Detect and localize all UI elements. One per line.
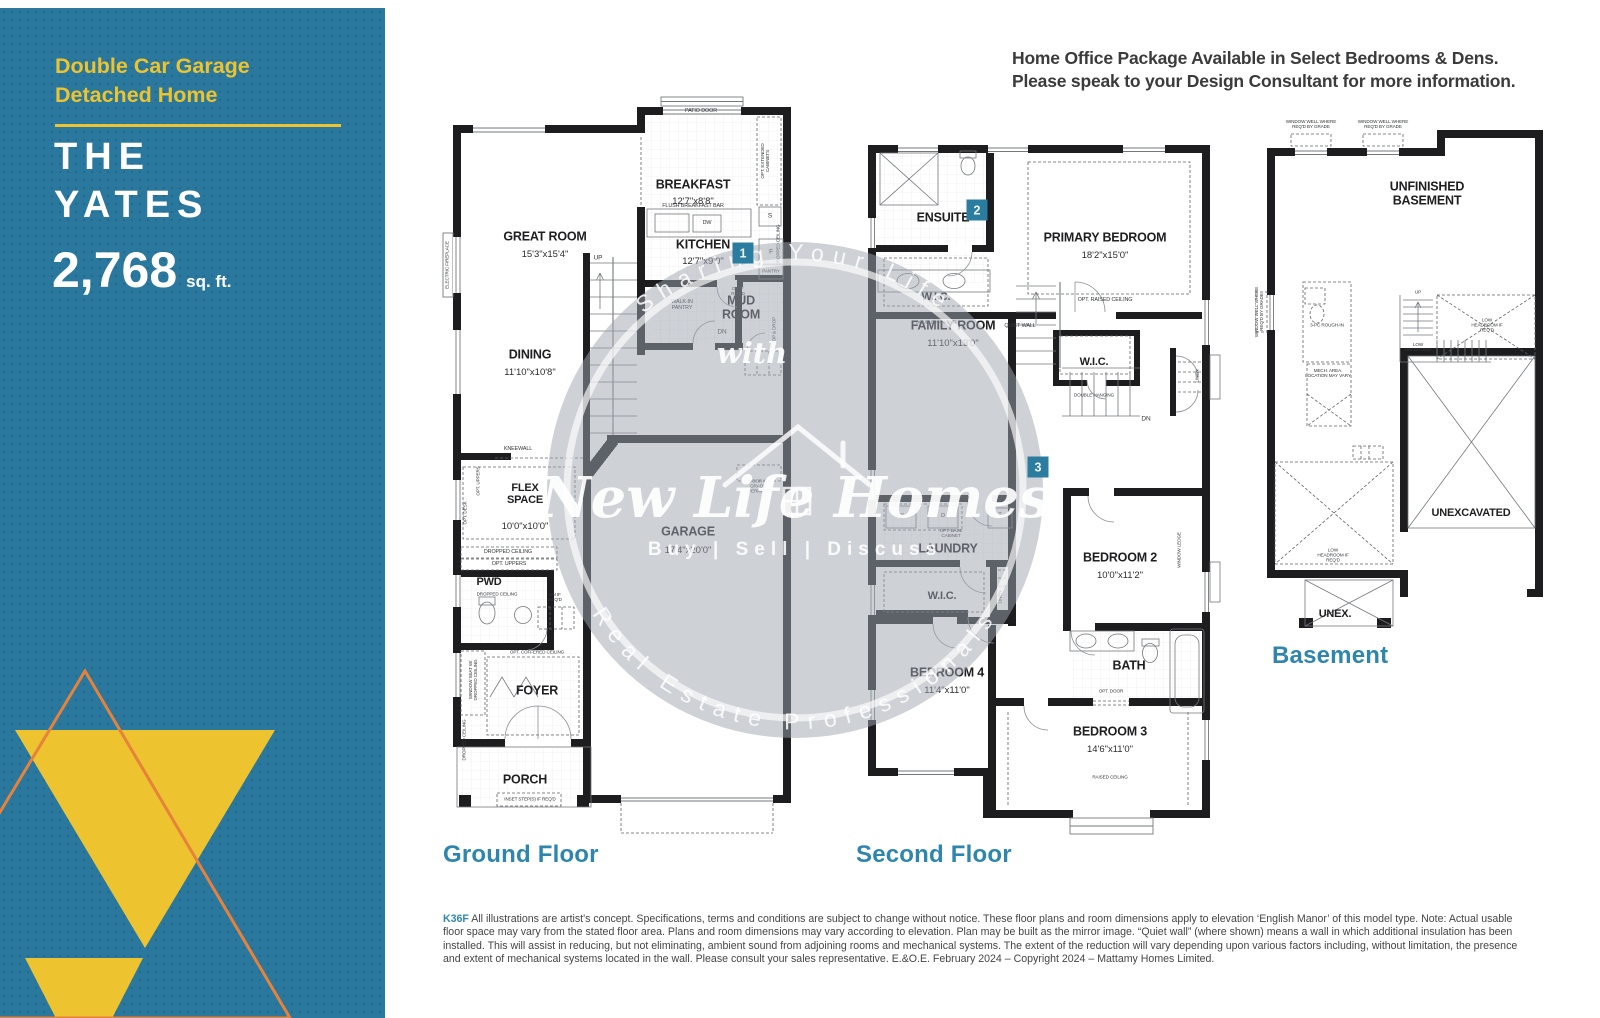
note-up: UP	[594, 254, 603, 261]
room-label-bedroom-3: BEDROOM 3	[1073, 725, 1147, 739]
note-opt-door: OPT. DOOR	[1099, 690, 1123, 695]
note-opt-extended-cabinets: OPT. EXTENDED CABINETS	[761, 136, 771, 186]
model-name-line2: YATES	[54, 184, 209, 227]
room-label-laundry: LAUNDRY	[918, 542, 977, 556]
note-dn: DN	[1141, 415, 1150, 422]
room-label-wic-3: W.I.C.	[928, 591, 957, 603]
model-name-line1: THE	[54, 136, 151, 179]
room-dims-great-room: 15'3"x15'4"	[522, 250, 569, 260]
sqft-value: 2,768	[52, 242, 177, 298]
room-dims-dining: 11'10"x10'8"	[504, 368, 555, 378]
note-opt-desk: OPT. DESK	[464, 501, 469, 524]
note-window-well-1: WINDOW WELL WHERE REQ'D BY GRADE	[1283, 120, 1339, 130]
room-label-primary-bedroom: PRIMARY BEDROOM	[1044, 231, 1167, 245]
note-linen-1: LINEN	[1196, 369, 1201, 382]
room-label-ensuite: ENSUITE	[917, 211, 970, 225]
note-electric-fireplace: ELECTRIC FIREPLACE	[446, 241, 451, 289]
room-label-flex-space: FLEX SPACE	[494, 483, 556, 507]
note-window-well-2: WINDOW WELL WHERE REQ'D BY GRADE	[1355, 120, 1411, 130]
home-type: Double Car Garage Detached Home	[55, 52, 250, 110]
disclaimer: K36F All illustrations are artist's conc…	[443, 913, 1523, 967]
note-opt-coffered-ceiling: OPT. COFFERED CEILING	[510, 651, 564, 656]
note-dropped-ceiling-foyer: DROPPED CEILING	[463, 720, 468, 761]
home-office-note-line2: Please speak to your Design Consultant f…	[1012, 70, 1515, 93]
note-fridge: F	[769, 248, 773, 255]
room-label-kitchen: KITCHEN	[676, 238, 730, 252]
note-opt-uppers: OPT. UPPERS	[943, 497, 972, 502]
plan-badge-3: 3	[1028, 457, 1049, 478]
note-low-headroom-if-reqd-2: LOW HEADROOM IF REQ'D	[1315, 549, 1351, 564]
note-sink: S	[768, 212, 772, 219]
ground-floor-drawing	[435, 95, 800, 840]
room-label-unexcavated: UNEXCAVATED	[1431, 508, 1510, 520]
note-linen-2: LINEN	[999, 590, 1004, 603]
room-label-garage: GARAGE	[661, 525, 715, 539]
note-walk-in-pantry: WALK-IN PANTRY	[662, 300, 702, 312]
room-dims-garage: 17'4"x20'0"	[665, 546, 712, 556]
room-label-unex: UNEX.	[1319, 609, 1352, 621]
note-dryer: D	[941, 514, 945, 520]
note-stop-and-drop: STOP & DROP	[773, 317, 778, 347]
note-kneewall: KNEEWALL	[504, 447, 532, 453]
home-type-line1: Double Car Garage	[55, 52, 250, 81]
room-label-pwd: PWD	[476, 577, 501, 589]
yellow-divider	[55, 124, 341, 127]
room-label-bedroom-2: BEDROOM 2	[1083, 551, 1157, 565]
room-label-great-room: GREAT ROOM	[503, 230, 586, 244]
second-floor-plan: ENSUITE PRIMARY BEDROOM 18'2"x15'0" W.I.…	[848, 120, 1228, 850]
note-dropped-ceiling: DROPPED CEILING	[484, 550, 532, 556]
note-washer: W	[899, 514, 904, 520]
large-yellow-triangle	[15, 730, 275, 948]
model-code: K36F	[443, 913, 469, 925]
note-dn-if-reqd: DN IF REQ'D	[725, 287, 751, 297]
disclaimer-text: All illustrations are artist's concept. …	[443, 913, 1517, 966]
note-window-ledge: WINDOW LEDGE	[1178, 532, 1183, 568]
note-mech-area: MECH. AREA. LOCATION MAY VARY	[1305, 369, 1351, 379]
basement-plan: UNFINISHED BASEMENT UNEXCAVATED UNEX. WI…	[1255, 110, 1555, 690]
note-quiet-wall: QUIET WALL	[1004, 324, 1035, 330]
room-dims-bedroom-3: 14'6"x11'0"	[1087, 745, 1133, 755]
note-window-seat: WINDOW SEAT W/ DROPPED CEILING	[469, 654, 479, 706]
room-dims-primary-bedroom: 18'2"x15'0"	[1082, 251, 1129, 261]
note-window-well-3: WINDOW WELL WHERE REQ'D BY GRADE	[1255, 286, 1265, 338]
note-dn: DN	[717, 328, 726, 335]
room-dims-bedroom-2: 10'0"x11'2"	[1097, 571, 1143, 581]
room-label-dining: DINING	[509, 348, 552, 362]
ground-floor-plan: GREAT ROOM 15'3"x15'4" BREAKFAST 12'7"x8…	[435, 95, 800, 840]
note-raised-ceiling: RAISED CEILING	[1092, 776, 1127, 781]
room-label-unfinished-basement: UNFINISHED BASEMENT	[1380, 181, 1475, 208]
windows	[1267, 148, 1399, 330]
room-label-mud-room: MUD ROOM	[715, 295, 767, 322]
note-opt-uppers: OPT. UPPERS	[492, 562, 527, 568]
room-label-breakfast: BREAKFAST	[656, 178, 731, 192]
room-label-bedroom-4: BEDROOM 4	[910, 666, 984, 680]
room-label-wic-2: W.I.C.	[1080, 357, 1109, 369]
note-tub-t: T	[998, 513, 1001, 519]
room-dims-kitchen: 12'7"x9'0"	[682, 257, 724, 267]
note-3pc-rough-in: 3-PC ROUGH-IN	[1310, 324, 1344, 329]
square-footage: 2,768sq. ft.	[52, 241, 231, 299]
room-dims-family-room: 11'10"x13'0"	[927, 339, 978, 349]
room-dims-flex-space: 10'0"x10'0"	[502, 522, 549, 532]
note-double-hanging-1: DOUBLE HANGING	[916, 321, 956, 326]
note-pwd-dropped-ceiling: DROPPED CEILING	[477, 593, 518, 598]
note-dropped-ceiling-vertical: DROPPED CEILING	[777, 225, 782, 266]
note-opt-base-cabinet: OPT. BASE CABINET	[930, 529, 972, 539]
note-opt-raised-ceiling: OPT. RAISED CEILING	[1078, 298, 1133, 304]
note-low-headroom-if-reqd: LOW HEADROOM IF REQ'D	[1469, 319, 1505, 334]
note-patio-door: PATIO DOOR	[685, 109, 717, 115]
room-label-foyer: FOYER	[516, 684, 558, 698]
note-low-headroom: LOW HEADROOM	[1401, 343, 1435, 353]
plan-badge-2: 2	[967, 200, 988, 221]
note-up: UP	[1415, 291, 1421, 296]
home-office-note-line1: Home Office Package Available in Select …	[1012, 47, 1515, 70]
room-label-bath: BATH	[1113, 659, 1146, 673]
note-dishwasher: DW	[703, 221, 712, 227]
note-flush-breakfast-bar: FLUSH BREAKFAST BAR	[662, 204, 724, 210]
home-office-note: Home Office Package Available in Select …	[1012, 47, 1515, 93]
walls	[868, 145, 1210, 818]
note-dn-if-reqd-2: DN IF REQ'D	[542, 593, 568, 603]
second-floor-drawing	[848, 120, 1228, 850]
caption-ground-floor: Ground Floor	[443, 841, 599, 869]
sqft-unit: sq. ft.	[186, 272, 231, 291]
note-inset-steps: INSET STEP(S) IF REQ'D	[504, 798, 555, 803]
triangle-logo-graphic	[0, 648, 385, 1018]
room-label-wic-1: W.I.C.	[922, 292, 951, 304]
note-double-hanging-2: DOUBLE HANGING	[1074, 394, 1114, 399]
home-type-line2: Detached Home	[55, 81, 250, 110]
brand-sidebar: Double Car Garage Detached Home THE YATE…	[0, 8, 385, 1018]
plan-badge-1: 1	[733, 243, 754, 264]
room-label-porch: PORCH	[503, 773, 547, 787]
room-dims-bedroom-4: 11'4"x11'0"	[924, 686, 969, 696]
small-yellow-triangle	[25, 958, 143, 1018]
note-opt-uppers-vertical: OPT. UPPERS	[477, 466, 482, 495]
note-pantry: PANTRY	[762, 270, 780, 275]
note-door-if-grade-permits: DOOR IF GRADE PERMITS	[741, 480, 775, 495]
